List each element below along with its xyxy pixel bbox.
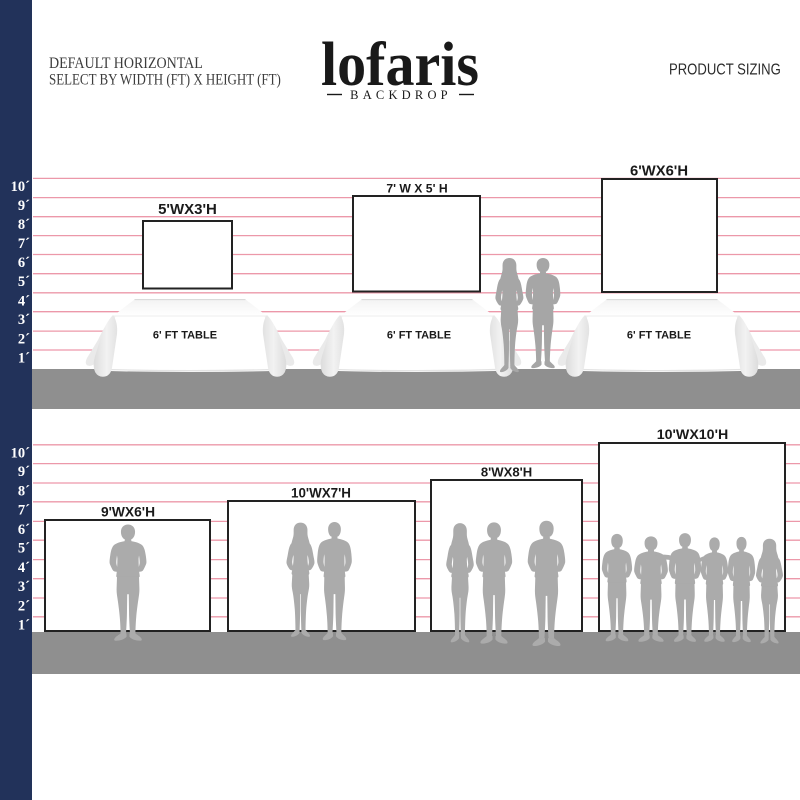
svg-text:9´: 9´ — [18, 464, 30, 480]
svg-text:BACKDROP: BACKDROP — [350, 88, 452, 102]
svg-text:8´: 8´ — [18, 217, 30, 233]
svg-text:6´: 6´ — [18, 255, 30, 271]
svg-text:10'WX10'H: 10'WX10'H — [657, 427, 728, 443]
svg-text:1´: 1´ — [18, 351, 30, 367]
svg-text:10´: 10´ — [11, 179, 31, 195]
svg-text:7´: 7´ — [18, 502, 30, 518]
svg-text:4´: 4´ — [18, 560, 30, 576]
svg-text:PRODUCT SIZING: PRODUCT SIZING — [669, 62, 781, 79]
svg-text:7´: 7´ — [18, 236, 30, 252]
svg-text:6' FT TABLE: 6' FT TABLE — [153, 330, 217, 342]
svg-text:1´: 1´ — [18, 617, 30, 633]
svg-text:8´: 8´ — [18, 484, 30, 500]
svg-text:3´: 3´ — [18, 312, 30, 328]
svg-text:6'WX6'H: 6'WX6'H — [630, 164, 688, 180]
svg-text:2´: 2´ — [18, 332, 30, 348]
svg-text:10´: 10´ — [11, 445, 31, 461]
svg-text:SELECT BY WIDTH (FT) X HEIGHT: SELECT BY WIDTH (FT) X HEIGHT (FT) — [49, 71, 281, 89]
svg-text:3´: 3´ — [18, 579, 30, 595]
svg-text:5´: 5´ — [18, 274, 30, 290]
svg-text:4´: 4´ — [18, 293, 30, 309]
svg-text:9´: 9´ — [18, 198, 30, 214]
svg-text:7' W X 5' H: 7' W X 5' H — [386, 182, 447, 196]
svg-text:2´: 2´ — [18, 599, 30, 615]
svg-text:DEFAULT HORIZONTAL: DEFAULT HORIZONTAL — [49, 55, 203, 72]
svg-text:5´: 5´ — [18, 541, 30, 557]
svg-text:6´: 6´ — [18, 522, 30, 538]
svg-text:6' FT TABLE: 6' FT TABLE — [387, 330, 451, 342]
svg-text:8'WX8'H: 8'WX8'H — [481, 465, 532, 480]
svg-text:6' FT TABLE: 6' FT TABLE — [627, 330, 691, 342]
svg-text:9'WX6'H: 9'WX6'H — [101, 505, 155, 520]
svg-text:5'WX3'H: 5'WX3'H — [158, 201, 217, 218]
svg-text:10'WX7'H: 10'WX7'H — [291, 486, 351, 501]
